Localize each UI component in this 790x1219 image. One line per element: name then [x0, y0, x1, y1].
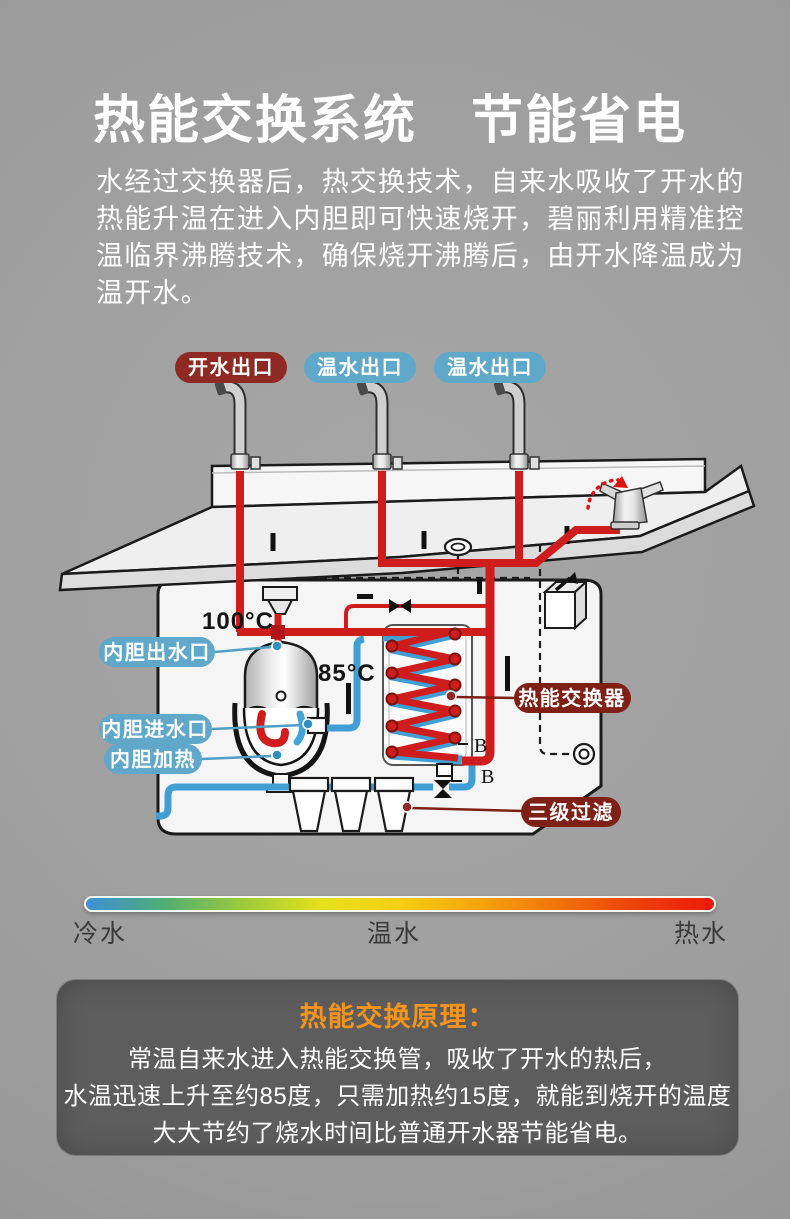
gauge-tick — [346, 683, 351, 714]
principle-text: 常温自来水进入热能交换管，吸收了开水的热后， 水温迅速上升至约85度，只需加热约… — [57, 1041, 738, 1152]
intro-line: 温开水。 — [96, 275, 745, 312]
faucet-icon — [356, 381, 402, 469]
filter-set — [290, 778, 413, 831]
counter-top — [60, 459, 754, 590]
principle-line: 常温自来水进入热能交换管，吸收了开水的热后， — [57, 1041, 738, 1078]
page-title: 热能交换系统 节能省电 — [93, 78, 687, 153]
faucet-icon — [214, 381, 260, 469]
svg-text:内胆进水口: 内胆进水口 — [101, 717, 209, 741]
tank-outlet-label: 内胆出水口 — [99, 637, 215, 667]
svg-text:内胆出水口: 内胆出水口 — [103, 640, 211, 664]
drain-port-icon — [445, 539, 471, 555]
dash-mark — [357, 594, 373, 599]
legend-label-warm: 温水 — [367, 914, 421, 950]
page-background: 热能交换系统 节能省电 水经过交换器后，热交换技术，自来水吸收了开水的 热能升温… — [0, 0, 790, 1219]
legend-label-hot: 热水 — [674, 914, 728, 950]
outlet-label-boiling: 开水出口 — [175, 352, 287, 383]
system-diagram: 开水出口 温水出口 温水出口 内胆出水口 内胆进水口 内胆加热 热能交换器 三 — [0, 340, 790, 870]
intro-line: 热能升温在进入内胆即可快速烧开，碧丽利用精准控 — [96, 201, 745, 238]
fuse-box-icon — [545, 582, 586, 628]
principle-box: 热能交换原理： 常温自来水进入热能交换管，吸收了开水的热后， 水温迅速上升至约8… — [56, 979, 739, 1156]
svg-text:温水出口: 温水出口 — [447, 355, 533, 379]
temp-100-label: 100°C — [202, 608, 274, 635]
temp-85-label: 85°C — [318, 660, 376, 687]
cord-tick — [477, 580, 482, 594]
regulator-icon — [437, 764, 452, 776]
temperature-legend-bar — [84, 896, 716, 912]
outlet-label-warm-1: 温水出口 — [304, 352, 416, 383]
intro-line: 温临界沸腾技术，确保烧开沸腾后，由开水降温成为 — [96, 238, 745, 275]
svg-text:温水出口: 温水出口 — [317, 355, 403, 379]
svg-text:三级过滤: 三级过滤 — [528, 800, 614, 824]
tank-heater-label: 内胆加热 — [104, 744, 202, 774]
heat-exchanger-label: 热能交换器 — [514, 683, 631, 713]
principle-title: 热能交换原理： — [57, 995, 738, 1034]
triple-filter-label: 三级过滤 — [521, 797, 621, 827]
intro-paragraph: 水经过交换器后，热交换技术，自来水吸收了开水的 热能升温在进入内胆即可快速烧开，… — [96, 164, 745, 312]
intro-line: 水经过交换器后，热交换技术，自来水吸收了开水的 — [96, 164, 745, 201]
svg-text:热能交换器: 热能交换器 — [518, 686, 626, 710]
principle-line: 水温迅速上升至约85度，只需加热约15度，就能到烧开的温度 — [57, 1078, 738, 1115]
svg-text:开水出口: 开水出口 — [188, 356, 274, 379]
legend-label-cold: 冷水 — [73, 914, 127, 950]
faucet-icon — [493, 381, 539, 469]
marker-b-lower: B — [481, 766, 494, 788]
tank-inlet-label: 内胆进水口 — [99, 714, 212, 744]
svg-text:内胆加热: 内胆加热 — [110, 747, 196, 771]
marker-b-upper: B — [474, 735, 487, 757]
power-plug-icon — [574, 744, 594, 764]
principle-line: 大大节约了烧水时间比普通开水器节能省电。 — [57, 1115, 738, 1152]
outlet-label-warm-2: 温水出口 — [434, 352, 546, 383]
gauge-tick — [505, 656, 510, 691]
